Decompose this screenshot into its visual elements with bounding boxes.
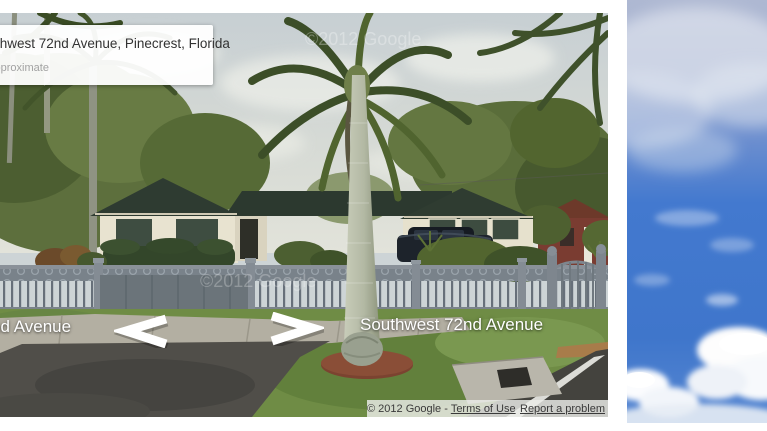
copyright-text: © 2012 Google - (367, 403, 448, 415)
terms-of-use-link[interactable]: Terms of Use (451, 403, 516, 415)
navigate-left-arrow-icon[interactable] (114, 314, 172, 348)
sky-photo-strip (627, 0, 767, 423)
street-label-right: Southwest 72nd Avenue (360, 315, 543, 335)
report-a-problem-link[interactable]: Report a problem (520, 403, 605, 415)
attribution-bar: © 2012 Google - Terms of Use Report a pr… (367, 400, 608, 417)
google-watermark-ground: ©2012 Google (200, 271, 316, 291)
address-info-box (0, 25, 213, 85)
navigate-right-arrow-icon[interactable] (266, 312, 324, 346)
sky-photo (627, 0, 767, 423)
address-subtitle: Address is approximate (0, 62, 49, 74)
street-label-left: Southwest 72nd Avenue (0, 317, 71, 337)
street-view-panorama[interactable]: ©2012 Google ©2012 Google Southwest 72nd… (0, 13, 608, 417)
google-watermark-sky: ©2012 Google (305, 29, 421, 49)
address-title: Southwest 72nd Avenue, Pinecrest, Florid… (0, 36, 230, 51)
